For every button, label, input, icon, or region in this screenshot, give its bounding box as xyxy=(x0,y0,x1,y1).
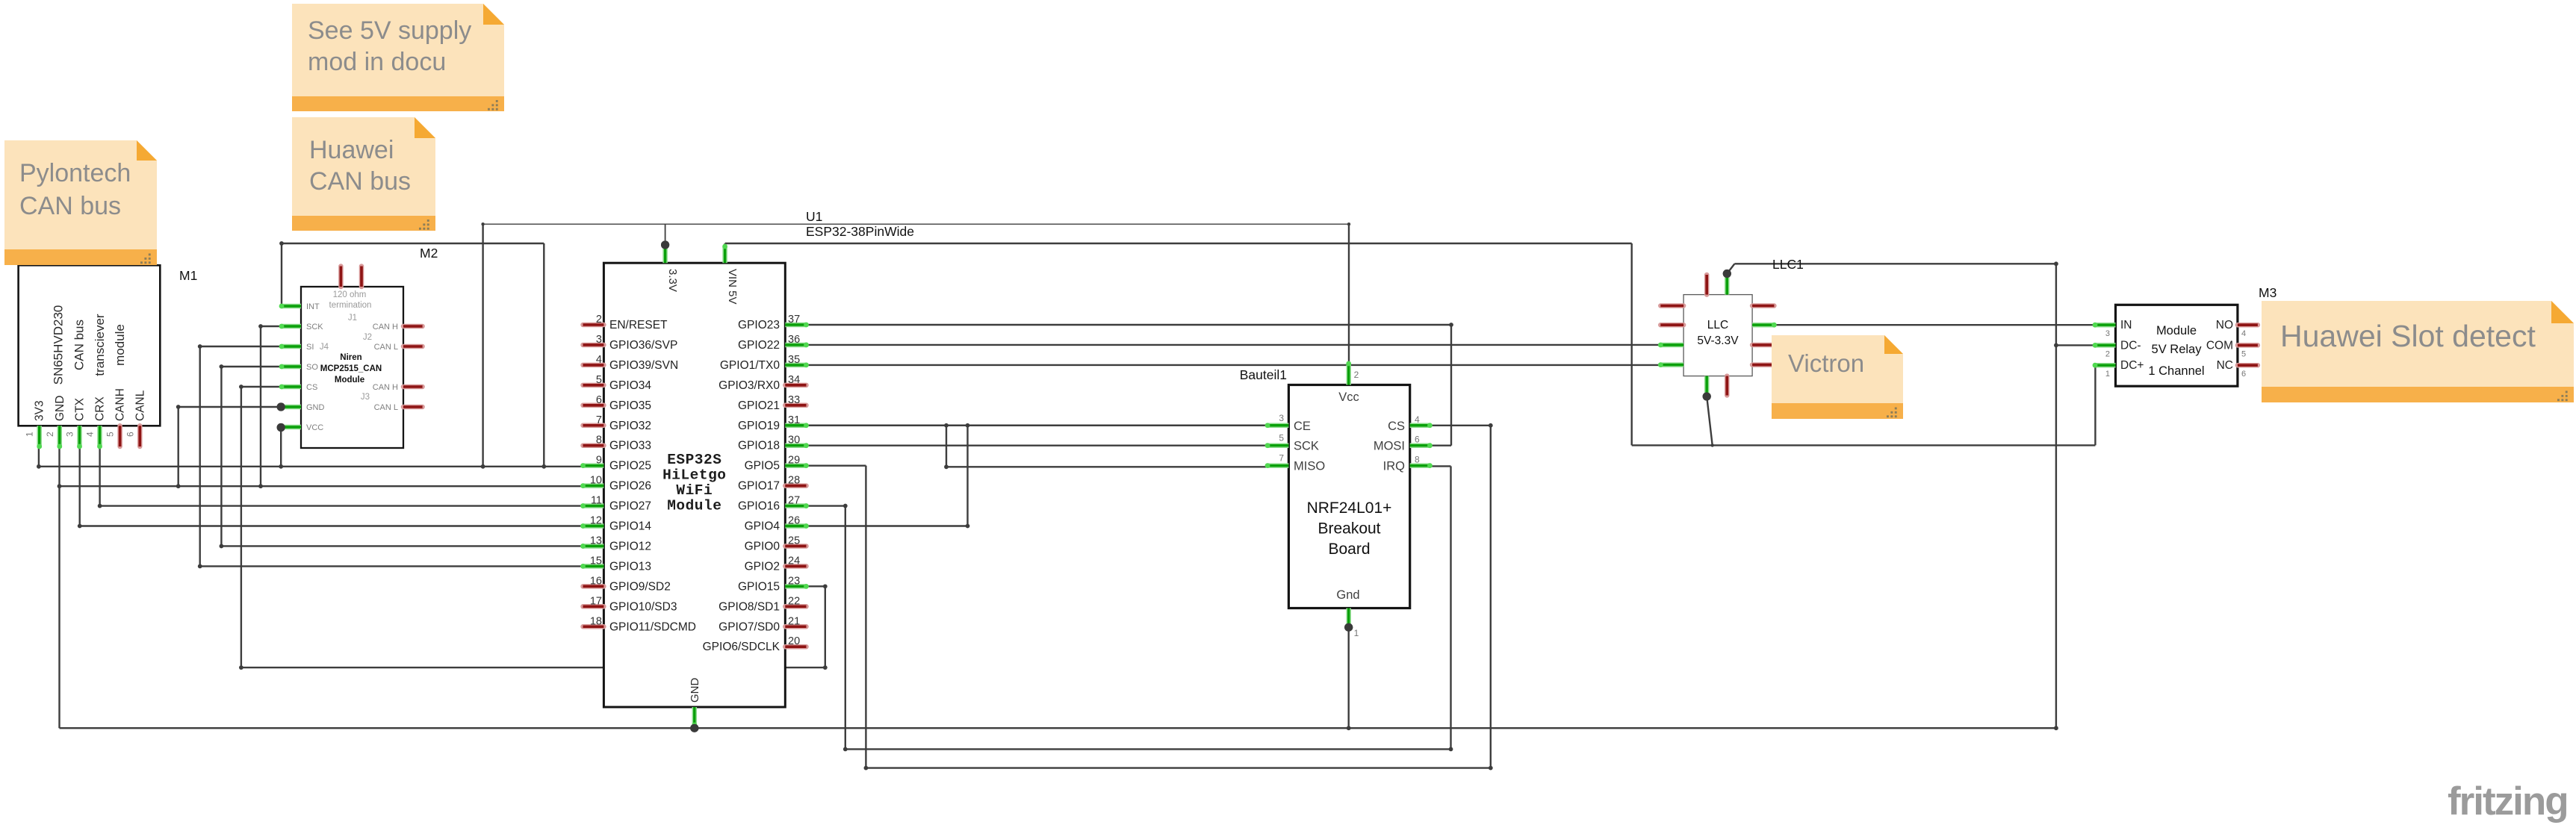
svg-text:GPIO26: GPIO26 xyxy=(609,480,651,493)
svg-text:See 5V supply: See 5V supply xyxy=(308,16,471,45)
svg-text:31: 31 xyxy=(788,414,800,426)
svg-text:M2: M2 xyxy=(420,246,438,261)
svg-text:GPIO2: GPIO2 xyxy=(745,560,780,573)
svg-text:Vcc: Vcc xyxy=(1338,390,1359,404)
svg-text:27: 27 xyxy=(788,495,800,507)
svg-text:20: 20 xyxy=(788,635,800,647)
svg-text:termination: termination xyxy=(329,301,372,310)
svg-text:SN65HVD230: SN65HVD230 xyxy=(51,305,65,385)
svg-text:CE: CE xyxy=(1294,420,1311,433)
svg-text:18: 18 xyxy=(590,615,602,627)
svg-text:SO: SO xyxy=(306,363,318,372)
svg-text:3.3V: 3.3V xyxy=(666,269,679,292)
svg-text:GPIO19: GPIO19 xyxy=(738,420,780,432)
svg-text:GPIO1/TX0: GPIO1/TX0 xyxy=(720,359,780,372)
svg-text:Niren: Niren xyxy=(340,353,361,362)
svg-text:2: 2 xyxy=(1354,370,1359,380)
svg-text:GPIO3/RX0: GPIO3/RX0 xyxy=(719,379,780,392)
svg-text:3V3: 3V3 xyxy=(34,400,46,421)
svg-text:VCC: VCC xyxy=(306,423,323,432)
svg-text:21: 21 xyxy=(788,615,800,627)
svg-text:5: 5 xyxy=(105,432,116,437)
svg-text:8: 8 xyxy=(596,435,602,446)
svg-text:MCP2515_CAN: MCP2515_CAN xyxy=(320,364,382,373)
svg-text:10: 10 xyxy=(590,475,602,487)
svg-text:5: 5 xyxy=(2241,349,2246,358)
svg-text:Module: Module xyxy=(667,498,721,514)
svg-text:3: 3 xyxy=(596,334,602,346)
svg-text:CAN H: CAN H xyxy=(373,323,398,331)
svg-text:HiLetgo: HiLetgo xyxy=(662,467,726,484)
svg-text:33: 33 xyxy=(788,394,800,406)
svg-text:Huawei Slot detect: Huawei Slot detect xyxy=(2280,319,2536,353)
svg-text:4: 4 xyxy=(1415,414,1420,425)
svg-text:23: 23 xyxy=(788,575,800,587)
svg-text:ESP32-38PinWide: ESP32-38PinWide xyxy=(806,224,914,239)
svg-text:12: 12 xyxy=(590,515,602,527)
svg-text:26: 26 xyxy=(788,515,800,527)
svg-text:GPIO17: GPIO17 xyxy=(738,480,780,493)
svg-text:GPIO14: GPIO14 xyxy=(609,520,651,533)
svg-text:3: 3 xyxy=(1279,413,1284,423)
svg-text:GPIO13: GPIO13 xyxy=(609,560,651,573)
svg-text:6: 6 xyxy=(596,394,602,406)
svg-text:17: 17 xyxy=(590,595,602,607)
svg-text:DC+: DC+ xyxy=(2120,359,2144,372)
svg-text:1: 1 xyxy=(25,432,35,437)
svg-text:5V Relay: 5V Relay xyxy=(2152,343,2203,356)
svg-text:16: 16 xyxy=(590,575,602,587)
svg-text:3: 3 xyxy=(2105,329,2110,338)
svg-text:5V-3.3V: 5V-3.3V xyxy=(1697,334,1739,347)
svg-text:13: 13 xyxy=(590,535,602,547)
svg-text:24: 24 xyxy=(788,555,800,567)
svg-text:MISO: MISO xyxy=(1294,460,1325,473)
svg-text:CS: CS xyxy=(306,383,317,392)
svg-text:5: 5 xyxy=(596,374,602,386)
svg-text:ESP32S: ESP32S xyxy=(667,452,721,468)
svg-text:Board: Board xyxy=(1328,541,1370,558)
svg-text:5: 5 xyxy=(1279,433,1284,443)
svg-text:Huawei: Huawei xyxy=(309,136,394,164)
svg-text:15: 15 xyxy=(590,555,602,567)
svg-text:mod in docu: mod in docu xyxy=(308,48,446,76)
svg-text:120 ohm: 120 ohm xyxy=(333,290,367,299)
svg-text:CAN L: CAN L xyxy=(374,403,398,412)
svg-text:9: 9 xyxy=(596,455,602,467)
svg-text:NO: NO xyxy=(2216,319,2233,331)
svg-text:module: module xyxy=(113,324,127,366)
svg-text:M1: M1 xyxy=(179,268,197,283)
svg-text:J1: J1 xyxy=(348,314,357,323)
svg-text:CTX: CTX xyxy=(74,397,87,421)
svg-text:4: 4 xyxy=(2241,329,2246,338)
svg-text:CAN H: CAN H xyxy=(373,383,398,392)
svg-text:GPIO7/SD0: GPIO7/SD0 xyxy=(719,620,780,633)
svg-text:6: 6 xyxy=(125,432,135,437)
svg-text:28: 28 xyxy=(788,475,800,487)
svg-text:GPIO5: GPIO5 xyxy=(745,460,780,473)
svg-text:CS: CS xyxy=(1388,420,1405,433)
svg-text:IRQ: IRQ xyxy=(1383,460,1406,473)
svg-text:LLC1: LLC1 xyxy=(1772,257,1804,272)
svg-text:7: 7 xyxy=(596,414,602,426)
svg-text:CAN L: CAN L xyxy=(374,343,398,352)
svg-text:DC-: DC- xyxy=(2120,339,2141,352)
svg-text:11: 11 xyxy=(591,495,602,507)
svg-text:2: 2 xyxy=(2105,349,2110,358)
svg-text:GPIO33: GPIO33 xyxy=(609,440,651,452)
svg-text:M3: M3 xyxy=(2259,285,2276,300)
svg-text:GPIO32: GPIO32 xyxy=(609,420,651,432)
svg-text:NRF24L01+: NRF24L01+ xyxy=(1307,499,1392,517)
svg-text:Module: Module xyxy=(2156,324,2197,337)
svg-text:29: 29 xyxy=(788,455,800,467)
svg-text:GPIO18: GPIO18 xyxy=(738,440,780,452)
svg-text:2: 2 xyxy=(45,432,55,437)
svg-text:GPIO8/SD1: GPIO8/SD1 xyxy=(719,600,780,613)
svg-text:30: 30 xyxy=(788,435,800,446)
svg-text:4: 4 xyxy=(85,432,96,437)
svg-text:NC: NC xyxy=(2217,359,2233,372)
svg-text:CRX: CRX xyxy=(94,396,107,421)
svg-text:U1: U1 xyxy=(806,209,822,224)
svg-text:MOSI: MOSI xyxy=(1374,440,1405,453)
svg-text:37: 37 xyxy=(788,314,800,326)
svg-text:WiFi: WiFi xyxy=(676,482,713,499)
svg-text:GPIO39/SVN: GPIO39/SVN xyxy=(609,359,678,372)
svg-text:J4: J4 xyxy=(320,343,329,352)
svg-text:22: 22 xyxy=(788,595,800,607)
svg-text:GPIO11/SDCMD: GPIO11/SDCMD xyxy=(609,620,696,633)
svg-text:transciever: transciever xyxy=(93,314,107,376)
svg-text:3: 3 xyxy=(65,432,75,437)
svg-text:COM: COM xyxy=(2206,339,2233,352)
svg-text:VIN 5V: VIN 5V xyxy=(726,269,739,305)
svg-text:GPIO10/SD3: GPIO10/SD3 xyxy=(609,600,677,613)
svg-text:1: 1 xyxy=(1354,628,1359,638)
svg-text:GPIO9/SD2: GPIO9/SD2 xyxy=(609,580,671,593)
svg-text:CANH: CANH xyxy=(114,388,127,421)
svg-text:CAN bus: CAN bus xyxy=(72,320,86,370)
svg-text:1: 1 xyxy=(2105,370,2110,379)
svg-text:CAN bus: CAN bus xyxy=(19,192,121,220)
svg-text:Bauteil1: Bauteil1 xyxy=(1240,367,1287,382)
svg-text:CAN bus: CAN bus xyxy=(309,167,411,196)
svg-text:GPIO15: GPIO15 xyxy=(738,580,780,593)
svg-text:GPIO36/SVP: GPIO36/SVP xyxy=(609,339,677,352)
svg-text:7: 7 xyxy=(1279,453,1284,464)
svg-text:34: 34 xyxy=(788,374,800,386)
svg-text:fritzing: fritzing xyxy=(2448,779,2568,824)
svg-text:GPIO4: GPIO4 xyxy=(745,520,780,533)
svg-text:2: 2 xyxy=(596,314,602,326)
svg-text:GPIO16: GPIO16 xyxy=(738,500,780,513)
svg-text:GND: GND xyxy=(54,396,66,421)
svg-text:Pylontech: Pylontech xyxy=(19,159,131,187)
svg-text:35: 35 xyxy=(788,354,800,366)
svg-text:GPIO6/SDCLK: GPIO6/SDCLK xyxy=(703,641,780,653)
svg-text:SCK: SCK xyxy=(1294,440,1319,453)
svg-text:GND: GND xyxy=(689,678,701,703)
svg-text:25: 25 xyxy=(788,535,800,547)
svg-text:GPIO23: GPIO23 xyxy=(738,319,780,331)
svg-text:IN: IN xyxy=(2120,319,2132,331)
svg-text:J2: J2 xyxy=(363,333,372,342)
svg-text:GPIO35: GPIO35 xyxy=(609,399,651,412)
svg-text:Gnd: Gnd xyxy=(1336,588,1359,602)
svg-text:GPIO22: GPIO22 xyxy=(738,339,780,352)
svg-text:SCK: SCK xyxy=(306,323,323,331)
svg-text:LLC: LLC xyxy=(1707,319,1728,331)
svg-text:GPIO21: GPIO21 xyxy=(738,399,780,412)
svg-text:Victron: Victron xyxy=(1788,349,1864,377)
svg-text:INT: INT xyxy=(306,302,320,311)
svg-text:8: 8 xyxy=(1415,455,1420,465)
svg-text:6: 6 xyxy=(1415,435,1420,445)
svg-text:36: 36 xyxy=(788,334,800,346)
svg-text:GND: GND xyxy=(306,403,325,412)
svg-text:J3: J3 xyxy=(361,393,370,402)
svg-text:GPIO12: GPIO12 xyxy=(609,540,651,552)
svg-text:EN/RESET: EN/RESET xyxy=(609,319,668,331)
svg-text:1 Channel: 1 Channel xyxy=(2148,364,2204,378)
svg-text:GPIO25: GPIO25 xyxy=(609,460,651,473)
svg-text:GPIO34: GPIO34 xyxy=(609,379,651,392)
svg-text:GPIO0: GPIO0 xyxy=(745,540,780,552)
svg-text:CANL: CANL xyxy=(134,390,146,421)
svg-text:4: 4 xyxy=(596,354,602,366)
svg-text:Module: Module xyxy=(335,376,364,385)
svg-text:6: 6 xyxy=(2241,370,2246,379)
svg-text:GPIO27: GPIO27 xyxy=(609,500,651,513)
svg-text:Breakout: Breakout xyxy=(1318,520,1380,537)
svg-text:SI: SI xyxy=(306,343,314,352)
